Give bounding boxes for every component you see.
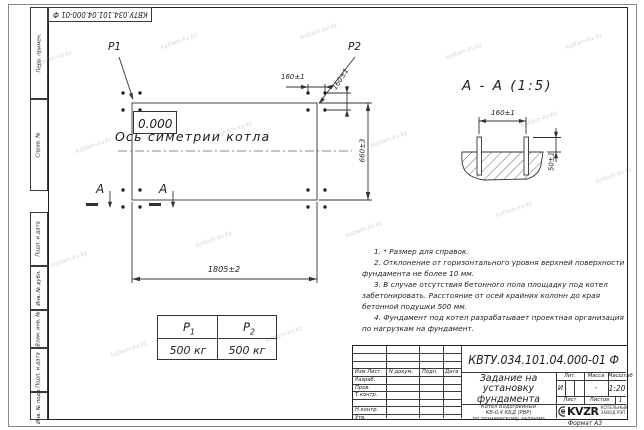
- tb-drawing-subtitle: Котел Водогрейный КВ-0,4 КБД (РВР) по те…: [461, 405, 556, 423]
- load-table-value-p2: 500 кг: [221, 345, 273, 356]
- note-item: 4. Фундамент под котел разрабатывает про…: [362, 313, 628, 335]
- section-dim-50-text: 50±1: [549, 144, 556, 180]
- leader-p1: [119, 57, 133, 100]
- drawing-sheet: kotlam-kv.kz kotlam-kv.kz kotlam-kv.kz k…: [0, 0, 644, 430]
- anchor-bolt-section-left: [477, 137, 482, 175]
- tb-row-razrab: Разраб.: [355, 378, 375, 383]
- section-letter-a-right: А: [159, 183, 167, 195]
- section-dim-160: [479, 117, 526, 134]
- tb-row-utv: Утв.: [355, 416, 366, 421]
- load-table: P1 P2 500 кг 500 кг: [157, 315, 277, 360]
- tb-title-line: установку: [461, 384, 556, 394]
- tb-header-izm: Изм.Лист: [355, 370, 380, 375]
- section-letter-a-left: А: [96, 183, 104, 195]
- tb-doc-number-cell: КВТУ.034.101.04.000-01 Ф: [461, 346, 626, 372]
- load-point-p1-label: P1: [108, 42, 121, 53]
- tb-header-massa: Масса: [584, 374, 608, 379]
- load-table-header-p2: P2: [238, 322, 260, 336]
- load-table-header-p1: P1: [178, 322, 200, 336]
- tb-row-nkontr: Н.контр.: [355, 408, 378, 413]
- kvzr-logo-text: KVZR: [567, 405, 598, 418]
- tb-subtitle-line: по техническому заданию: [461, 417, 556, 423]
- tb-row-prov: Пров.: [355, 386, 370, 391]
- anchor-bolt-section-right: [524, 137, 529, 175]
- tb-doc-number: КВТУ.034.101.04.000-01 Ф: [468, 352, 619, 367]
- tb-listov-value: 1: [615, 398, 626, 404]
- load-point-p2-label: P2: [348, 42, 361, 53]
- dim-660-text: 660±3: [360, 129, 367, 173]
- tb-header-list: Лист: [556, 398, 584, 403]
- tb-header-lit: Лит.: [556, 374, 584, 379]
- section-dim-160-text: 160±1: [481, 110, 525, 117]
- tb-masshtab-value: 1:20: [608, 385, 626, 393]
- section-title: А - А (1:5): [462, 80, 552, 94]
- kvzr-logo-caption: КОТЕЛЬНЫЙ ЗАВОД РЭП: [601, 406, 628, 416]
- tb-header-podp: Подп.: [422, 370, 438, 375]
- tb-drawing-title: Задание на установку фундамента: [461, 374, 556, 405]
- section-view-concrete: [462, 137, 543, 180]
- dim-160-columns: [286, 84, 333, 92]
- axis-of-symmetry-label: Ось симетрии котла: [115, 131, 270, 144]
- load-table-value-p1: 500 кг: [162, 345, 214, 356]
- note-item: 1. * Размер для справок.: [362, 247, 628, 258]
- tb-header-masshtab: Масштаб: [608, 374, 626, 379]
- note-item: 3. В случае отсутствия бетонного пола пл…: [362, 280, 628, 313]
- tb-logo-cell: KVZR КОТЕЛЬНЫЙ ЗАВОД РЭП: [556, 404, 628, 418]
- note-item: 2. Отклонение от горизонтального уровня …: [362, 258, 628, 280]
- tb-header-data: Дата: [445, 370, 458, 375]
- title-block: Изм.Лист N докум. Подп. Дата Разраб. Про…: [352, 345, 628, 420]
- kvzr-caption-line2: ЗАВОД РЭП: [601, 411, 628, 416]
- dim-1805-text: 1805±2: [194, 266, 254, 274]
- tb-header-listov: Листов: [584, 398, 615, 403]
- format-label: Формат А3: [555, 421, 615, 427]
- notes-block: 1. * Размер для справок. 2. Отклонение о…: [362, 247, 628, 335]
- tb-lit-value: И: [556, 385, 565, 392]
- kvzr-logo-icon: [558, 406, 565, 417]
- anchor-bolts-plan: [121, 91, 326, 208]
- tb-massa-value: -: [584, 385, 608, 392]
- dim-160-cols-text: 160±1: [281, 74, 305, 81]
- tb-header-dokum: N докум.: [389, 370, 413, 375]
- tb-row-tkontr: Т.контр.: [355, 393, 377, 398]
